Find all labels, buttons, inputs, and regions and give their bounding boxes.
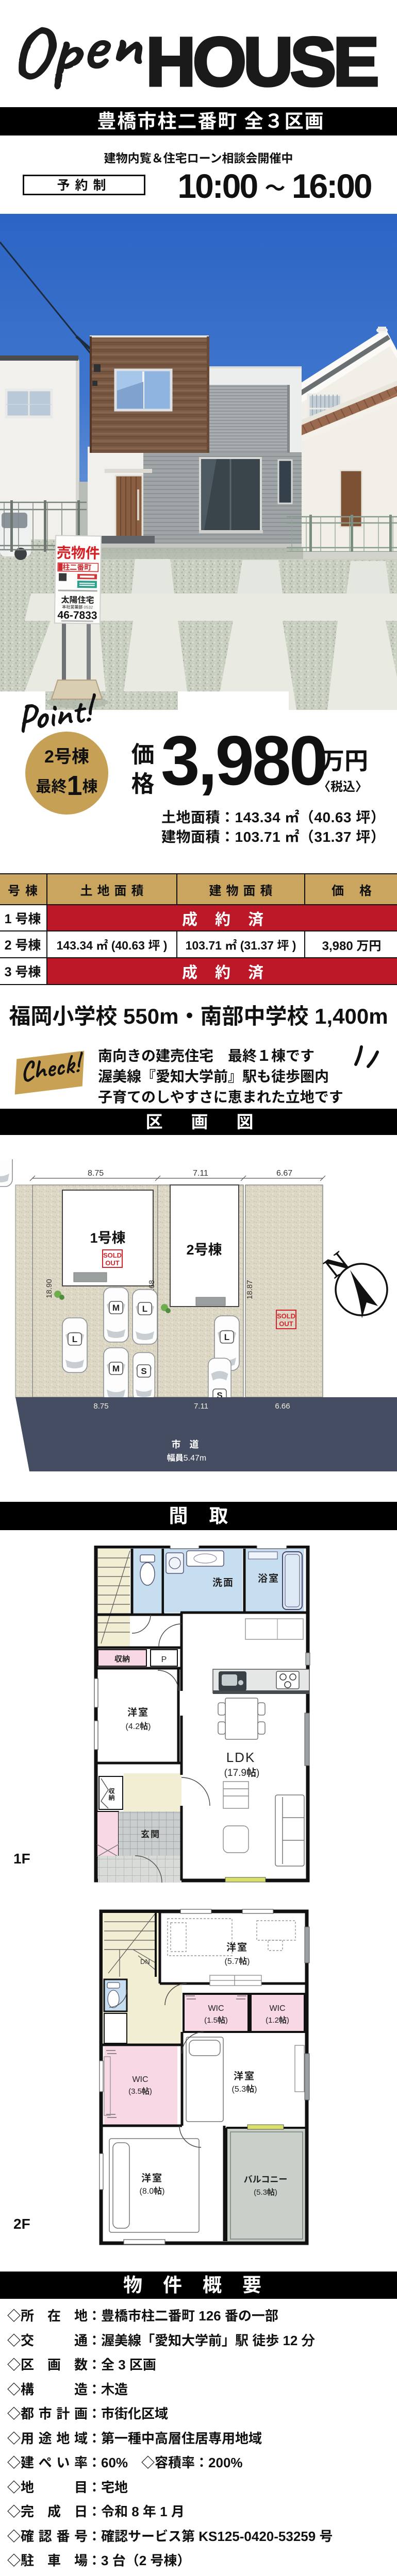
svg-text:幅員5.47m: 幅員5.47m (167, 1453, 206, 1463)
svg-text:太陽住宅: 太陽住宅 (61, 595, 94, 605)
svg-text:洋室: 洋室 (234, 2071, 255, 2082)
svg-text:売物件: 売物件 (56, 545, 100, 561)
svg-text:WIC: WIC (269, 2004, 285, 2013)
svg-text:L: L (142, 1304, 147, 1314)
svg-text:収納: 収納 (114, 1655, 130, 1664)
svg-text:18.90: 18.90 (45, 1279, 54, 1298)
svg-text:収納: 収納 (108, 1788, 115, 1801)
svg-text:7.11: 7.11 (194, 1402, 208, 1411)
svg-text:OUT: OUT (279, 1320, 293, 1328)
svg-text:バルコニー: バルコニー (244, 2175, 288, 2184)
svg-text:N: N (318, 1245, 355, 1284)
svg-text:SOLD: SOLD (103, 1251, 122, 1259)
svg-text:M: M (112, 1303, 120, 1313)
svg-text:WIC: WIC (208, 2004, 224, 2013)
svg-text:S: S (141, 1366, 146, 1376)
svg-text:洋室: 洋室 (141, 2173, 163, 2184)
svg-text:(3.5帖): (3.5帖) (128, 2087, 152, 2096)
svg-text:WIC: WIC (132, 2075, 148, 2084)
svg-text:46-7833: 46-7833 (57, 609, 97, 621)
svg-text:L: L (72, 1334, 77, 1344)
svg-text:2号棟: 2号棟 (186, 1242, 222, 1258)
svg-text:(4.2帖): (4.2帖) (126, 1722, 151, 1731)
svg-text:M: M (112, 1364, 120, 1374)
svg-text:P: P (161, 1655, 167, 1664)
svg-text:1号棟: 1号棟 (90, 1230, 125, 1246)
svg-text:6.66: 6.66 (275, 1402, 290, 1411)
svg-text:SOLD: SOLD (277, 1312, 295, 1320)
svg-text:8.75: 8.75 (88, 1169, 104, 1178)
svg-text:LDK: LDK (226, 1750, 256, 1765)
svg-text:(17.9帖): (17.9帖) (224, 1767, 260, 1778)
svg-text:(8.0帖): (8.0帖) (140, 2187, 165, 2196)
svg-text:7.11: 7.11 (193, 1169, 208, 1178)
svg-text:DN: DN (140, 1958, 150, 1965)
svg-text:(1.2帖): (1.2帖) (266, 2016, 289, 2025)
svg-text:市 道: 市 道 (171, 1439, 202, 1450)
svg-text:L: L (224, 1332, 229, 1342)
svg-text:玄関: 玄関 (141, 1829, 160, 1839)
svg-text:(5.7帖): (5.7帖) (225, 1957, 250, 1966)
svg-text:(5.3帖): (5.3帖) (232, 2084, 257, 2094)
svg-text:洋室: 洋室 (226, 1942, 248, 1953)
svg-text:8.75: 8.75 (93, 1402, 108, 1411)
svg-text:洋室: 洋室 (127, 1707, 149, 1718)
svg-text:洗面: 洗面 (212, 1577, 234, 1588)
svg-text:OUT: OUT (105, 1259, 120, 1267)
svg-text:18.87: 18.87 (245, 1280, 254, 1299)
svg-text:6.67: 6.67 (276, 1169, 292, 1178)
svg-text:柱二番町: 柱二番町 (62, 563, 91, 572)
svg-text:(1.5帖): (1.5帖) (204, 2016, 228, 2025)
svg-text:(5.3帖): (5.3帖) (254, 2188, 277, 2197)
svg-text:浴室: 浴室 (258, 1573, 279, 1584)
